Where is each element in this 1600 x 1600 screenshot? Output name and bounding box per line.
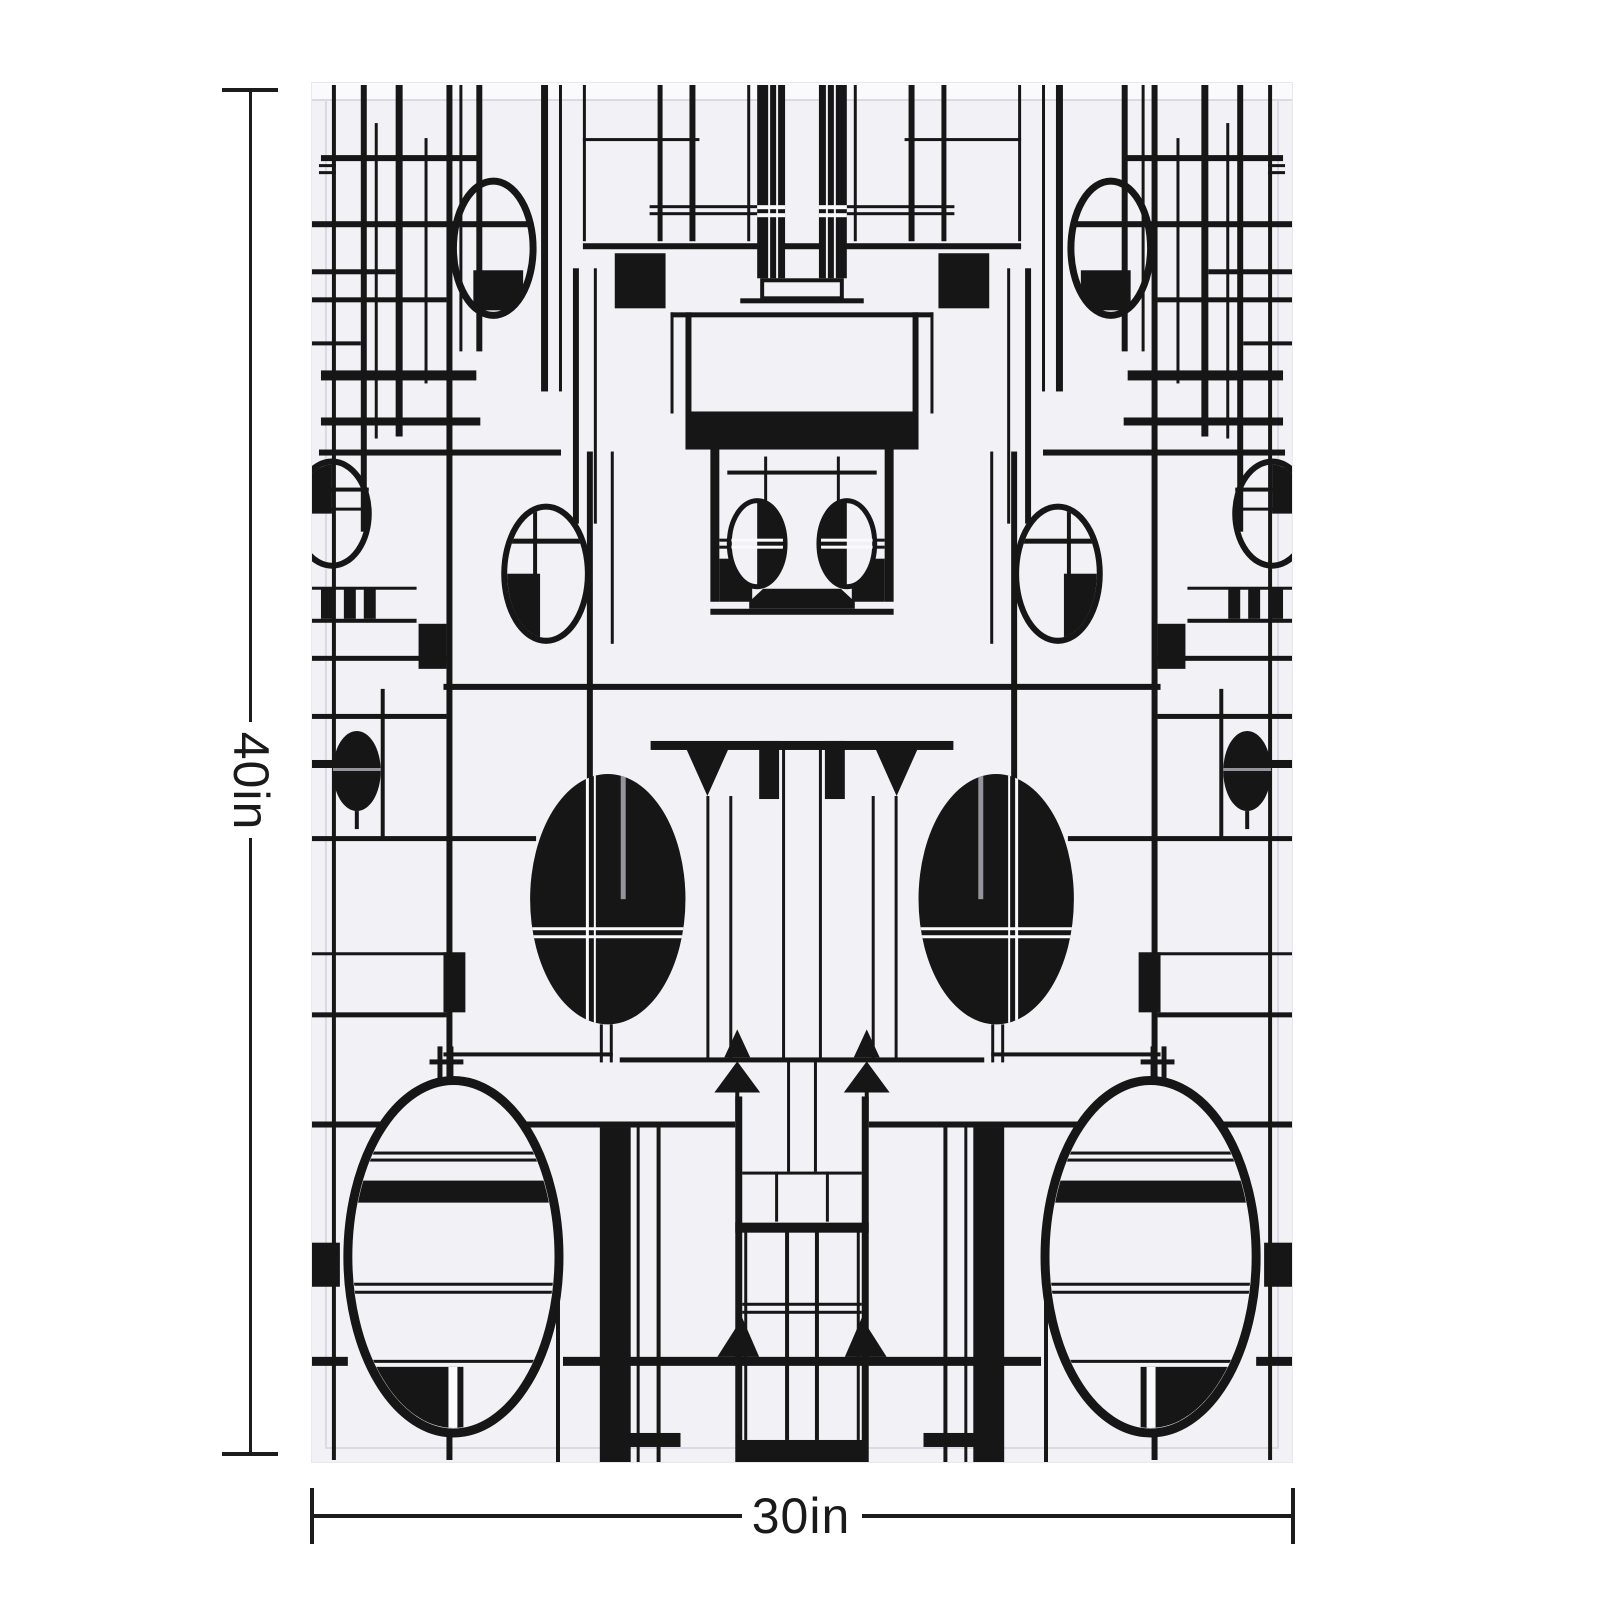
- eye-ellipse: [729, 501, 785, 587]
- product-mockup-image: 40in 30in: [0, 0, 1600, 1600]
- height-dimension-bottom-cap: [222, 1452, 278, 1456]
- height-dimension-line-lower: [249, 838, 252, 1454]
- width-dimension-right-cap: [1291, 1488, 1295, 1544]
- width-dimension-line-left: [310, 1514, 742, 1518]
- height-dimension-label: 40in: [226, 732, 276, 831]
- width-dimension-line-right: [862, 1514, 1293, 1518]
- width-dimension-label: 30in: [744, 1491, 859, 1541]
- blanket-panel: [312, 83, 1292, 1462]
- edge-square: [312, 1243, 340, 1287]
- pattern-artwork: [312, 83, 1292, 1462]
- height-dimension-line-upper: [249, 88, 252, 722]
- bottom-black-bar: [600, 1128, 631, 1462]
- outlined-ellipse-mid: [504, 507, 588, 641]
